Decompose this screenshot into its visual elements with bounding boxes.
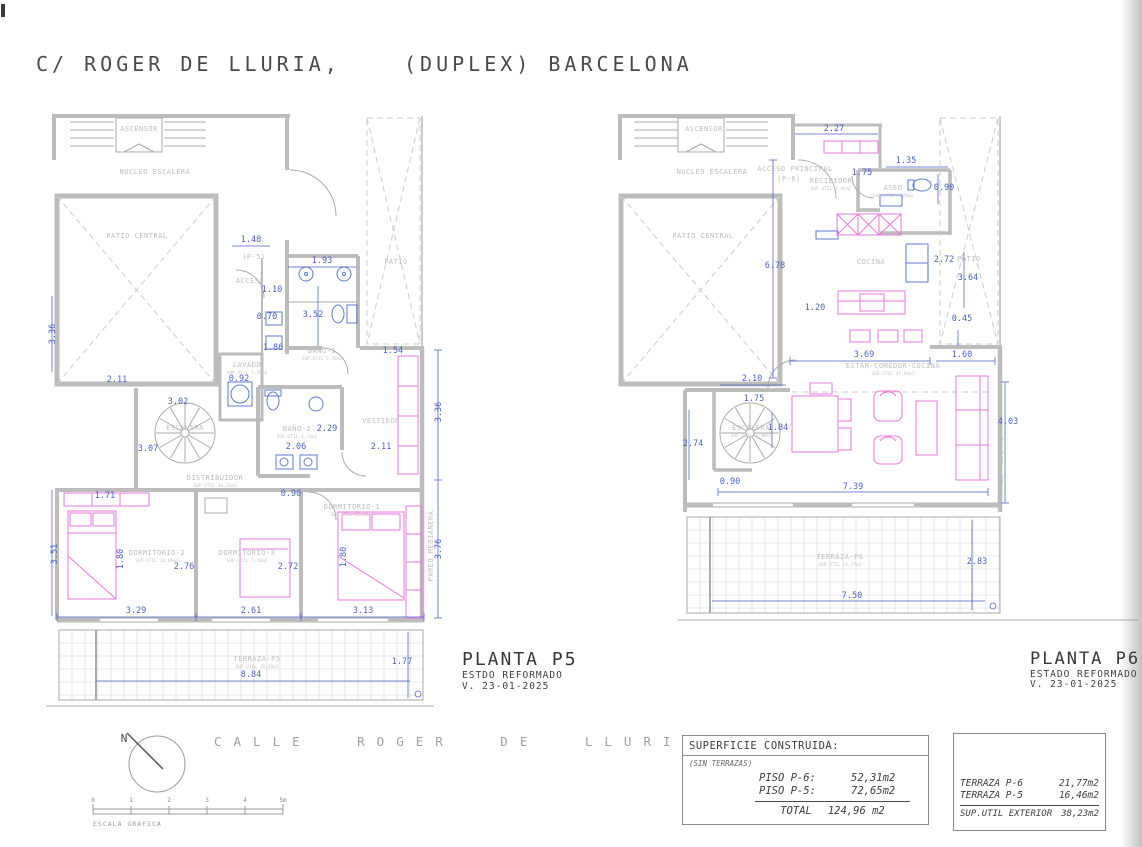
table-superficie-construida: SUPERFICIE CONSTRUIDA: (SIN TERRAZAS) PI… [682,735,929,825]
room-area-label: SUP.UTIL 21,77m2 [818,562,862,568]
room-area-label: SUP.UTIL 10,35m2 [193,483,237,489]
room-label: BAÑO-2 [283,424,311,433]
p5-furniture [64,356,422,618]
dimension-label: 2.06 [286,442,306,452]
room-label: TERRAZA-P5 [233,655,280,663]
dimension-label: 2.74 [683,439,703,449]
p6-version: V. 23-01-2025 [1030,680,1140,691]
dimension-label: 4.03 [998,417,1018,427]
table-row: PISO P-6: 52,31m2 [759,772,928,785]
dimension-label: 3.07 [138,444,158,454]
p5-state: ESTDO REFORMADO [462,671,578,682]
p6-title: PLANTA P6 [1030,650,1140,670]
room-label: PATIO [384,258,408,266]
table-title: SUPERFICIE CONSTRUIDA: [683,736,928,756]
p5-caption: PLANTA P5 ESTDO REFORMADO V. 23-01-2025 [462,650,578,693]
dimension-label: 0.90 [934,183,954,193]
room-label: TERRAZA-P6 [816,553,863,561]
dimension-label: 3.02 [168,397,188,407]
p5-title: PLANTA P5 [462,650,578,671]
p5-windows [100,615,388,625]
dimension-label: 2.72 [934,255,954,265]
dimension-label: 1.80 [116,549,126,569]
dimension-label: 2.83 [967,557,987,567]
dimension-label: 2.10 [742,374,762,384]
p5-dimension-labels: 1.481.931.100.703.521.863.362.110.923.02… [48,235,444,680]
dimension-label: 7.50 [842,591,862,601]
dimension-label: 3.52 [303,310,323,320]
room-label: (P-5) [242,253,266,261]
dimension-label: 3.64 [958,273,978,283]
scale-tick-label: 4 [243,797,247,804]
table-row: TERRAZA P-5 16,46m2 [960,790,1099,802]
dimension-label: 1.10 [262,285,282,295]
room-label: NUCLEO ESCALERA [120,168,191,176]
scale-tick-label: 2 [167,797,171,804]
dimension-label: 0.90 [281,489,301,499]
room-label: ESCALERA [732,424,770,432]
room-label: DORMITORIO-1 [324,503,381,511]
dimension-label: 1.77 [392,657,412,667]
dimension-label: 1.80 [339,547,349,567]
scale-tick-label: 0 [91,797,95,804]
dimension-label: 6.78 [765,261,785,271]
floorplan-drawing: ASCENSORNUCLEO ESCALERAPATIO CENTRAL(P-5… [0,0,1142,847]
scale-caption: ESCALA GRAFICA [93,820,162,828]
table-note: (SIN TERRAZAS) [683,756,928,768]
room-label: RECIBIDOR [810,177,853,185]
dimension-label: 1.71 [95,491,115,501]
room-label: DISTRIBUIDOR [187,474,244,482]
dimension-label: 2.76 [174,562,194,572]
scale-tick-label: 5m [279,797,287,804]
room-area-label: SUP.UTIL 5,70m2 [302,356,343,362]
street-name: CALLE ROGER DE LLURIA [214,734,702,749]
room-area-label: SUP.UTIL 2,80m2 [811,186,852,192]
dimension-label: 3.36 [48,324,58,344]
p5-lightwell [57,118,420,384]
dimension-label: 1.86 [263,343,283,353]
room-label: ASCENSOR [120,125,158,133]
table-total-row: TOTAL 124,96 m2 [755,801,910,817]
room-area-label: SUP.UTIL 15,30m2 [330,512,374,518]
room-label: ASEO [884,184,903,192]
room-label: ACCESO [236,277,264,285]
dimension-label: 3.29 [126,606,146,616]
room-area-label: SUP.UTIL 4,70m2 [277,434,318,440]
table-total-row: SUP.UTIL EXTERIOR 38,23m2 [960,805,1099,819]
room-area-label: SUP.UTIL 3,40m2 [731,433,772,439]
room-label: COCINA [857,258,886,266]
dimension-label: 2.27 [824,124,844,134]
stair-spoke [160,435,182,448]
scale-tick-label: 1 [129,797,133,804]
room-label: VESTIDOR [362,417,400,425]
dimension-label: 1.20 [805,303,825,313]
dimension-label: 1.54 [383,346,403,356]
p6-caption: PLANTA P6 ESTADO REFORMADO V. 23-01-2025 [1030,650,1140,691]
dimension-label: 3.69 [854,350,874,360]
dimension-label: 0.45 [952,314,972,324]
dimension-label: 2.61 [241,606,261,616]
room-area-label: SUP.UTIL 7,10m2 [227,558,268,564]
room-label: DORMITORIO-3 [219,549,276,557]
room-label: PATIO [957,255,981,263]
room-label: LAVADO [233,361,261,369]
dimension-label: 0.92 [229,374,249,384]
table-row: PISO P-5: 72,65m2 [759,785,928,798]
room-label: PATIO CENTRAL [106,232,167,240]
dimension-label: 1.60 [952,350,972,360]
dimension-label: 2.11 [107,375,127,385]
dimension-label: 1.84 [768,423,788,433]
table-row: TERRAZA P-6 21,77m2 [960,778,1099,790]
stair-spoke [188,435,210,448]
dimension-label: 3.76 [434,539,444,559]
room-label: ASCENSOR [685,125,723,133]
dimension-label: 2.29 [317,424,337,434]
room-label: (P-6) [777,175,801,183]
dimension-label: 2.72 [278,562,298,572]
dimension-label: 0.70 [257,312,277,322]
dimension-label: 3.51 [50,544,60,564]
dimension-label: 0.90 [720,477,740,487]
scale-bar: 012345m ESCALA GRAFICA [91,797,287,828]
room-area-label: SUP.UTIL 37,84m2 [871,371,915,377]
dimension-label: 1.75 [852,168,872,178]
dimension-label: 3.36 [434,402,444,422]
table-superficie-exterior: TERRAZA P-6 21,77m2 TERRAZA P-5 16,46m2 … [953,733,1106,831]
p5-room-labels: ASCENSORNUCLEO ESCALERAPATIO CENTRAL(P-5… [106,125,435,670]
dimension-label: 3.13 [353,606,373,616]
room-label: BAÑO-1 [308,346,336,355]
north-label: N [121,732,128,745]
room-label: ESTAR-COMEDOR-COCINA [846,362,941,370]
scale-tick-label: 3 [205,797,209,804]
dimension-label: 1.48 [241,235,261,245]
dimension-label: 1.75 [744,394,764,404]
room-label: NUCLEO ESCALERA [677,168,748,176]
dimension-label: 2.11 [371,442,391,452]
dimension-label: 8.84 [241,670,261,680]
room-label: ESCALERA [166,424,204,432]
dimension-label: 7.39 [843,482,863,492]
room-area-label: SUP.UTIL 10,86m2 [135,558,179,564]
room-label: ACCESO PRINCIPAL [757,165,832,173]
p5-version: V. 23-01-2025 [462,682,578,693]
north-compass: N [121,732,185,792]
room-label: DORMITORIO-2 [129,549,186,557]
room-area-label: SUP.UTIL 1,70m2 [873,193,914,199]
room-label: PATIO CENTRAL [672,232,733,240]
dimension-label: 1.93 [312,256,332,266]
room-label: PARED MEDIANERA [997,426,1005,497]
dimension-label: 1.35 [896,156,916,166]
